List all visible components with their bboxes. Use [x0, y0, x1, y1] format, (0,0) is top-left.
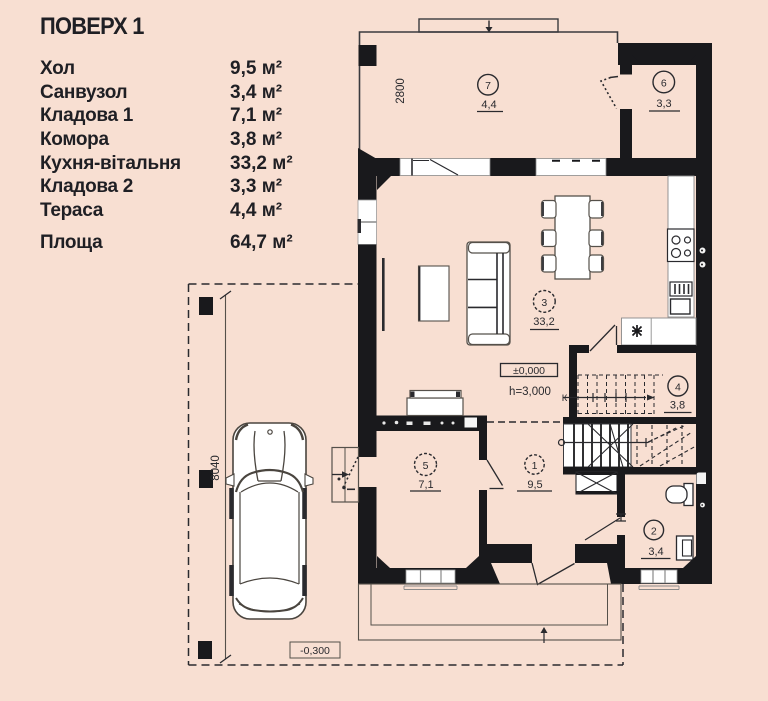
svg-text:К: К — [562, 393, 568, 404]
svg-text:6: 6 — [661, 78, 667, 90]
svg-text:-0,300: -0,300 — [300, 645, 330, 657]
svg-text:3,4: 3,4 — [648, 546, 663, 558]
svg-text:7,1: 7,1 — [418, 479, 433, 491]
svg-text:9,5: 9,5 — [527, 479, 542, 491]
svg-text:1: 1 — [532, 460, 538, 472]
svg-text:2: 2 — [651, 526, 657, 538]
svg-text:3: 3 — [541, 297, 547, 309]
svg-text:2800: 2800 — [395, 78, 407, 104]
svg-text:3,8: 3,8 — [670, 400, 685, 412]
svg-text:4: 4 — [675, 382, 681, 394]
svg-text:±0,000: ±0,000 — [513, 365, 545, 377]
svg-text:8040: 8040 — [210, 455, 222, 481]
svg-text:5: 5 — [423, 460, 429, 472]
svg-text:7: 7 — [485, 80, 491, 92]
svg-text:h=3,000: h=3,000 — [509, 386, 551, 398]
svg-text:33,2: 33,2 — [533, 316, 554, 328]
svg-text:3,3: 3,3 — [656, 98, 671, 110]
svg-text:4,4: 4,4 — [481, 99, 496, 111]
